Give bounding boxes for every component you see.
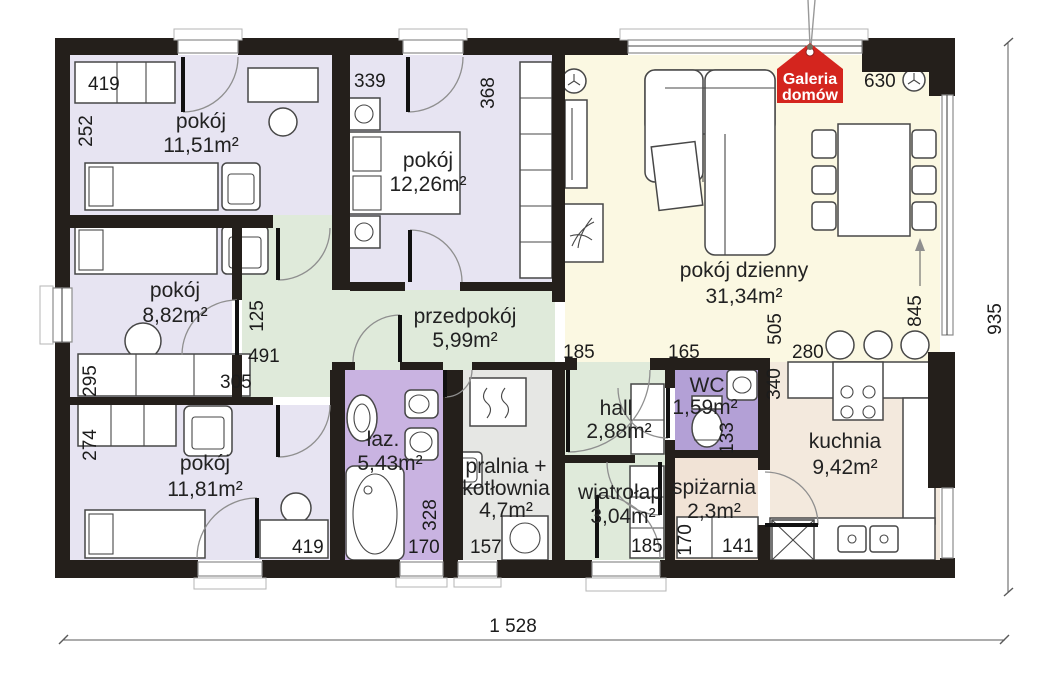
kitchen-window	[942, 488, 953, 558]
entrance-step	[586, 578, 666, 591]
pillow	[89, 514, 113, 554]
fireplace	[563, 204, 603, 262]
burner	[863, 386, 875, 398]
dining-table	[838, 124, 910, 236]
dim-living-top: 630	[864, 71, 896, 92]
dim-pantry-shelf-w: 141	[722, 536, 754, 557]
chair	[281, 493, 311, 523]
chair	[912, 202, 936, 230]
dim-vestibule-wardrobe: 185	[631, 536, 663, 557]
laundry-label-1: pralnia +	[465, 455, 546, 478]
lamp	[355, 105, 373, 123]
chair	[912, 166, 936, 194]
lamp	[355, 223, 373, 241]
dim-living-height: 505	[765, 313, 786, 345]
chair	[812, 130, 836, 158]
pillow	[353, 176, 381, 210]
dim-r1-width: 419	[88, 74, 120, 95]
dim-r1-height: 252	[76, 115, 97, 147]
terrace-door-window	[178, 40, 238, 53]
hall-label: hall	[600, 397, 633, 420]
room2-area: 12,26m²	[389, 173, 466, 196]
laundry-window	[458, 562, 497, 576]
dim-r2-width: 339	[354, 71, 386, 92]
desk	[248, 68, 318, 102]
living-label: pokój dzienny	[680, 259, 809, 282]
dim-laundry-width: 157	[470, 537, 502, 558]
dim-r4-desk: 419	[292, 537, 324, 558]
dim-hall-width: 185	[563, 342, 595, 363]
glazing-sill	[620, 29, 868, 40]
pillow	[353, 137, 381, 171]
laundry-area: 4,7m²	[479, 499, 533, 522]
dim-total-height: 935	[985, 303, 1006, 335]
chair	[912, 130, 936, 158]
chair	[812, 202, 836, 230]
pillow	[89, 167, 113, 206]
boiler	[470, 378, 526, 426]
burner	[863, 406, 875, 418]
hall-cabinet	[631, 384, 664, 454]
wc-area: 1,59m²	[672, 396, 737, 419]
terrace-door-window	[198, 562, 262, 576]
terrace-sill	[174, 29, 242, 40]
bathroom-window	[400, 562, 443, 576]
room3-area: 8,82m²	[142, 304, 207, 327]
burner	[841, 406, 853, 418]
dim-total-width: 1 528	[489, 616, 537, 637]
dim-wc-height: 133	[717, 422, 738, 454]
room1-label: pokój	[176, 110, 226, 133]
terrace-door-window	[403, 40, 463, 53]
hallway-label: przedpokój	[414, 305, 517, 328]
bathroom-area: 5,43m²	[357, 452, 422, 475]
vestibule-label: wiatrołap	[577, 481, 662, 504]
dim-r3-height: 295	[80, 365, 101, 397]
chair	[812, 166, 836, 194]
room4-label: pokój	[180, 452, 230, 475]
dim-kitchen-open: 280	[792, 342, 824, 363]
logo-line1: Galeria	[783, 71, 837, 88]
dim-r4-height: 274	[80, 429, 101, 461]
room4-area: 11,81m²	[167, 478, 242, 501]
coffee-table	[651, 142, 702, 211]
dim-glazing: 845	[905, 295, 926, 327]
vestibule-area: 3,04m²	[590, 505, 655, 528]
dim-hallway-length: 491	[248, 346, 280, 367]
terrace-step	[194, 578, 266, 589]
dim-pantry-shelf-h: 170	[675, 524, 696, 556]
dim-r3-sofa: 305	[220, 372, 252, 393]
sofa-right	[705, 70, 775, 255]
bathroom-label: łaz.	[367, 428, 400, 451]
bar-stool	[864, 331, 892, 359]
dim-bath-width: 170	[408, 537, 440, 558]
kitchen-area: 9,42m²	[812, 456, 877, 479]
logo-line2: domów	[782, 87, 839, 104]
entrance-door-opening	[592, 562, 660, 576]
floor-plan-canvas: pokój 11,51m² pokój 12,26m² pokój dzienn…	[0, 0, 1063, 678]
pantry-area: 2,3m²	[687, 500, 741, 523]
wc-label: WC	[690, 374, 725, 397]
dim-passage-width: 125	[247, 300, 268, 332]
chair	[269, 108, 297, 136]
terrace-sill	[399, 29, 467, 40]
room3-label: pokój	[150, 279, 200, 302]
living-area: 31,34m²	[705, 285, 782, 308]
dim-r2-wardrobe: 368	[478, 77, 499, 109]
burner	[841, 386, 853, 398]
dim-wc-width: 165	[668, 342, 700, 363]
tv-cabinet	[565, 100, 587, 188]
hall-area: 2,88m²	[586, 420, 651, 443]
bar-stool	[826, 331, 854, 359]
dim-kitchen-depth: 340	[764, 368, 785, 400]
laundry-label-2: kotłownia	[462, 477, 550, 500]
logo-pin-icon	[807, 44, 813, 50]
room2-label: pokój	[403, 149, 453, 172]
pillow	[79, 230, 103, 270]
bar-stool	[901, 331, 929, 359]
window-sill	[40, 286, 53, 344]
floor-plan-page: pokój 11,51m² pokój 12,26m² pokój dzienn…	[0, 0, 1063, 678]
dim-bath-height: 328	[420, 499, 441, 531]
room1-area: 11,51m²	[163, 134, 238, 157]
hallway-area: 5,99m²	[432, 329, 497, 352]
kitchen-label: kuchnia	[809, 430, 882, 453]
pantry-label: spiżarnia	[672, 476, 756, 499]
